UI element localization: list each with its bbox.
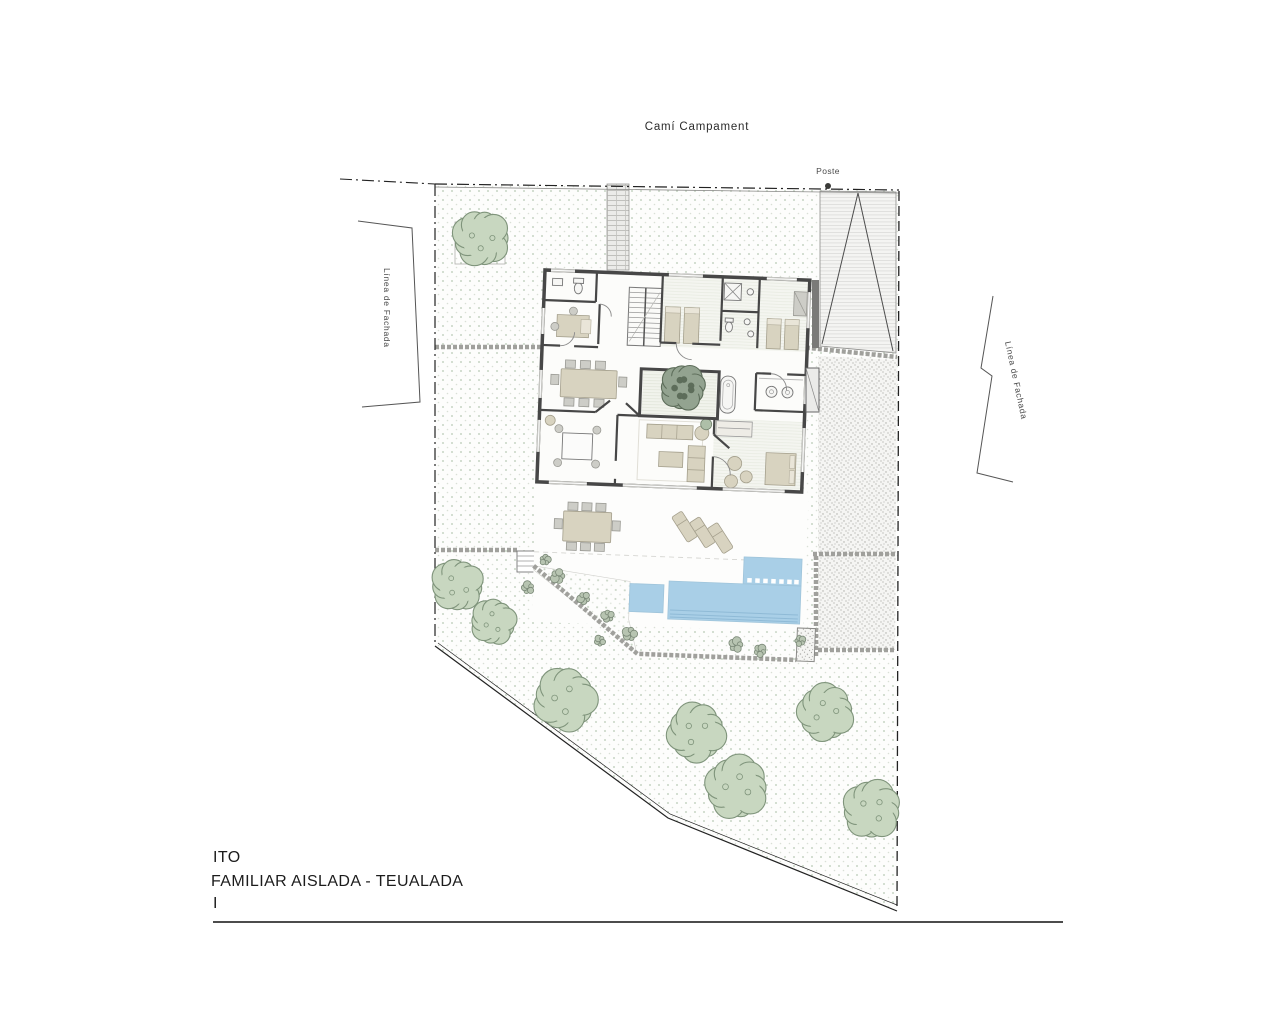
road-name-label: Camí Campament [645, 121, 750, 133]
architectural-site-plan: Camí Campament Poste Línea de Fachada Lí… [0, 0, 1280, 1024]
bathtub [720, 376, 736, 414]
post-label: Poste [816, 166, 840, 176]
staircase [627, 287, 662, 346]
title-line-2: FAMILIAR AISLADA - TEUALADA [211, 873, 463, 890]
facade-line-left-label: Línea de Fachada [382, 268, 392, 348]
storage-structure [806, 368, 819, 412]
plant [700, 419, 711, 430]
title-line-3: I [213, 895, 218, 912]
tree [843, 779, 899, 837]
tree [432, 560, 483, 610]
site-plan-svg: Camí Campament Poste Línea de Fachada Lí… [0, 0, 1280, 1024]
driveway-wall [812, 280, 819, 348]
title-line-1: ITO [213, 849, 241, 866]
courtyard-tree [661, 366, 705, 411]
facade-line-left: Línea de Fachada [358, 221, 420, 407]
post-marker: Poste [816, 166, 840, 189]
boundary-top-extension [340, 179, 435, 184]
entry-path [607, 184, 629, 270]
title-block: ITO FAMILIAR AISLADA - TEUALADA I [211, 849, 1063, 922]
driveway [812, 191, 896, 353]
house-terrace-group [530, 270, 828, 662]
pool-steps [629, 583, 664, 612]
facade-line-right: Línea de Fachada [977, 296, 1029, 482]
facade-line-right-label: Línea de Fachada [1003, 340, 1029, 420]
